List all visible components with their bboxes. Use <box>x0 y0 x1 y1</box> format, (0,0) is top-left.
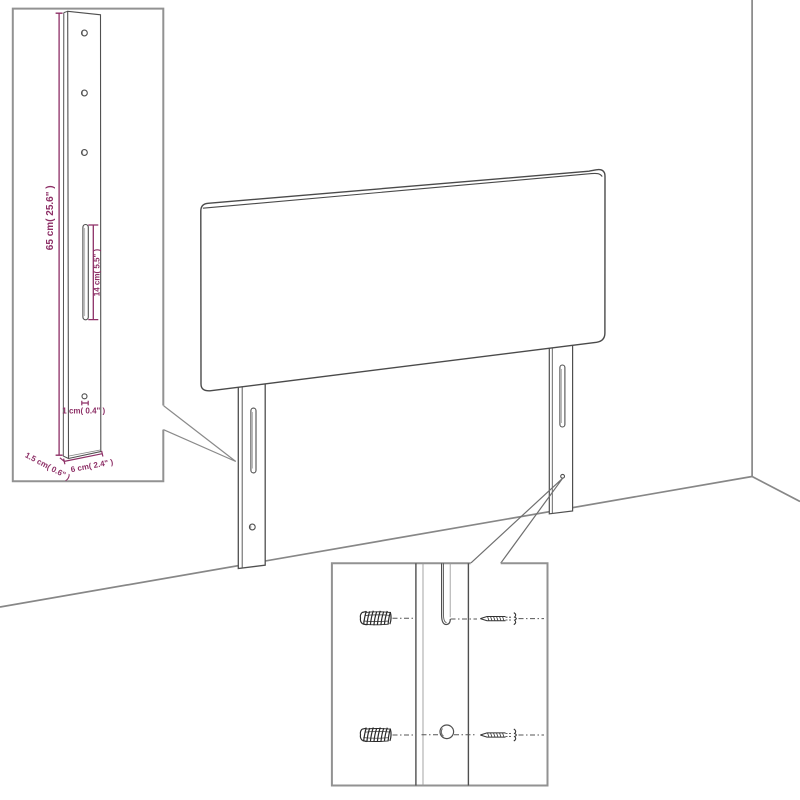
svg-text:14 cm( 5.5" ): 14 cm( 5.5" ) <box>92 248 101 296</box>
svg-text:1 cm( 0.4" ): 1 cm( 0.4" ) <box>62 406 105 415</box>
svg-text:65 cm( 25.6" ): 65 cm( 25.6" ) <box>45 185 56 250</box>
